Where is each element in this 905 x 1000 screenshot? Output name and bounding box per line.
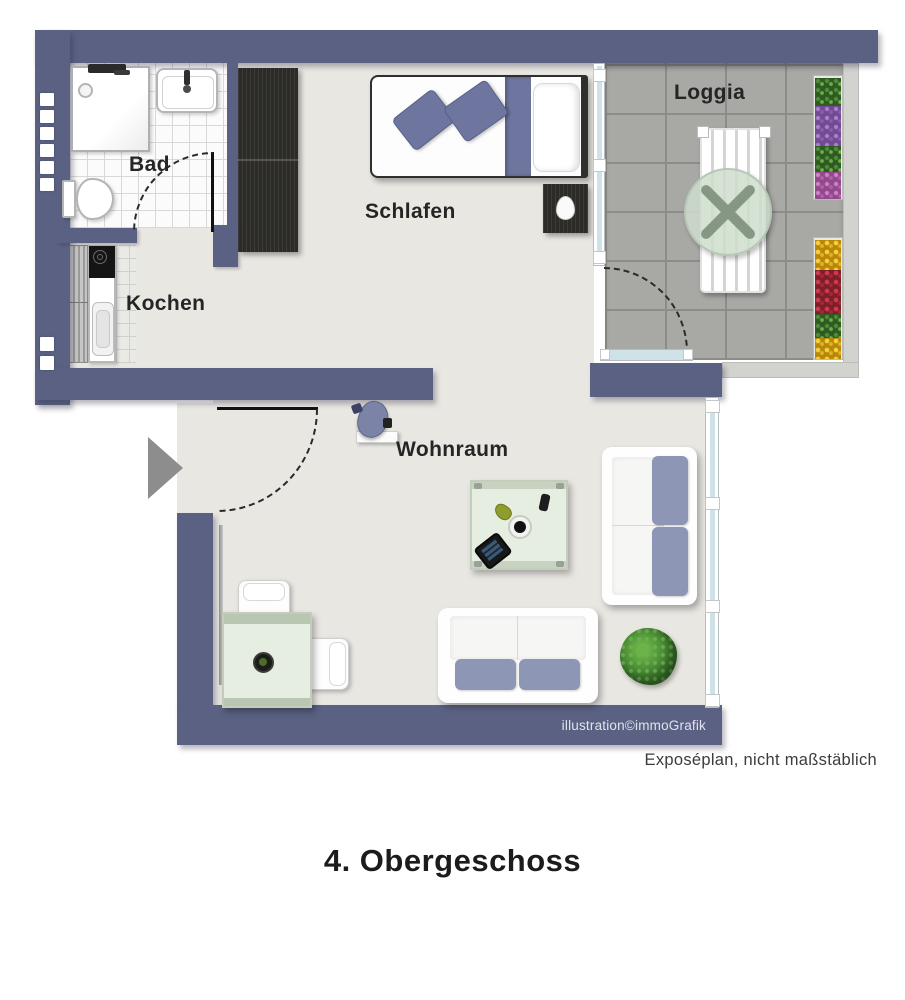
balcony-door-leaf	[600, 349, 693, 361]
table-bracket	[556, 561, 564, 567]
window-mullion	[705, 400, 720, 413]
sofa-bottom-seam	[517, 616, 518, 660]
wall-living-west	[177, 513, 213, 708]
window-bedroom-loggia	[593, 63, 605, 266]
glass-block	[40, 110, 54, 123]
glass-block	[40, 337, 54, 351]
door-cap	[683, 349, 693, 360]
flowers-purple	[815, 106, 841, 146]
table-bracket	[474, 483, 482, 489]
glass-block	[40, 178, 54, 191]
table-bracket	[474, 561, 482, 567]
bathroom-faucet-icon	[184, 70, 190, 85]
room-label-bad: Bad	[129, 153, 170, 177]
lounger-corner	[759, 126, 771, 138]
floor-title: 4. Obergeschoss	[0, 843, 905, 879]
wall-bath-pillar	[213, 225, 238, 267]
shower	[71, 66, 150, 152]
desk-chair-right-back	[329, 642, 346, 686]
coffee-table-edge	[472, 482, 566, 489]
window-mullion	[593, 159, 606, 172]
glass-block	[40, 161, 54, 174]
credit-text: illustration©immoGrafik	[562, 718, 706, 733]
window-mullion	[705, 694, 720, 707]
potted-plant	[620, 628, 677, 685]
sofa-right-cushion	[652, 527, 688, 596]
kitchen-sink-basin	[96, 310, 110, 348]
desk-chair-top-back	[243, 583, 285, 601]
shower-arm-icon	[114, 70, 130, 75]
wall-mid	[35, 368, 433, 400]
toilet-tank	[62, 180, 76, 218]
flower-box-upper	[813, 75, 843, 200]
table-bracket	[556, 483, 564, 489]
desk-edge	[224, 698, 310, 706]
desk-plant-icon	[259, 658, 267, 666]
room-label-schlafen: Schlafen	[365, 200, 456, 224]
wardrobe-divider	[238, 159, 298, 161]
window-living-east	[705, 397, 719, 708]
nightstand-lamp-icon	[556, 196, 575, 220]
loggia-slab-edge-right	[843, 63, 859, 378]
wall-bath-east	[227, 63, 238, 225]
wall-top	[35, 30, 878, 63]
scale-disclaimer: Exposéplan, nicht maßstäblich	[645, 751, 877, 770]
window-mullion	[705, 600, 720, 613]
desk-edge	[224, 614, 310, 624]
flowers-red	[815, 270, 841, 314]
room-label-loggia: Loggia	[674, 81, 745, 105]
flowers-yellow	[815, 240, 841, 270]
glass-block	[40, 127, 54, 140]
sofa-bottom-back	[450, 616, 586, 660]
bed-pillow-white	[533, 83, 580, 172]
door-cap	[600, 349, 610, 360]
flower-box-lower	[813, 237, 843, 360]
floorplan-canvas: illustration©immoGrafik	[0, 0, 905, 1000]
bed-blanket	[505, 77, 531, 176]
entrance-arrow-icon	[148, 437, 183, 499]
wall-bath-south	[57, 228, 137, 243]
plants-green	[815, 314, 841, 338]
lounger-corner	[697, 126, 709, 138]
window-pane	[710, 400, 715, 705]
plants-green	[815, 146, 841, 172]
wall-loggia-south	[590, 363, 722, 397]
shower-drain-icon	[78, 83, 93, 98]
flowers-pink	[815, 172, 841, 199]
room-label-kochen: Kochen	[126, 292, 205, 316]
cooktop-burner-small-icon	[97, 254, 103, 260]
glass-block	[40, 356, 54, 370]
wall-bottom: illustration©immoGrafik	[177, 705, 722, 745]
plants-green	[815, 78, 841, 106]
window-mullion	[593, 251, 606, 264]
sofa-bottom-cushion	[455, 659, 516, 690]
sofa-right-cushion	[652, 456, 688, 525]
decor-bowl-center	[514, 521, 526, 533]
flowers-yellow	[815, 338, 841, 359]
sofa-right-seam	[612, 525, 664, 526]
sofa-bottom-cushion	[519, 659, 580, 690]
glass-block	[40, 93, 54, 106]
loggia-slab-edge-bottom	[722, 362, 859, 378]
room-label-wohnraum: Wohnraum	[396, 438, 508, 462]
hall-chair-leg	[383, 418, 392, 428]
window-mullion	[593, 69, 606, 82]
glass-block	[40, 144, 54, 157]
window-mullion	[705, 497, 720, 510]
bathroom-faucet-knob-icon	[183, 85, 191, 93]
